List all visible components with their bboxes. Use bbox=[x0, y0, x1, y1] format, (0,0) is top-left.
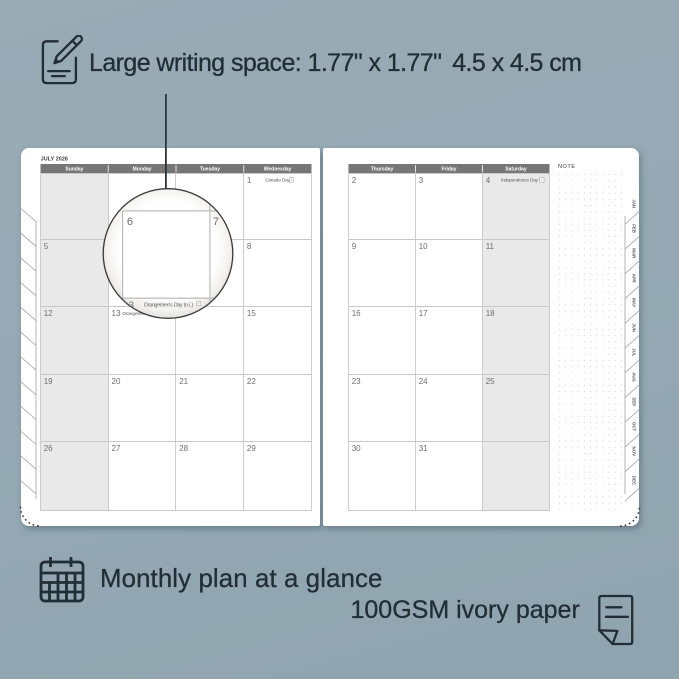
svg-text:JULY 2026: JULY 2026 bbox=[41, 156, 68, 162]
svg-text:16: 16 bbox=[352, 309, 361, 318]
svg-text:28: 28 bbox=[179, 444, 188, 453]
svg-text:SEP: SEP bbox=[632, 397, 637, 406]
svg-text:Canada Day: Canada Day bbox=[265, 178, 290, 183]
svg-text:FEB: FEB bbox=[632, 224, 637, 233]
svg-text:10: 10 bbox=[419, 242, 428, 251]
svg-text:29: 29 bbox=[247, 444, 256, 453]
svg-text:21: 21 bbox=[179, 377, 188, 386]
svg-text:18: 18 bbox=[486, 309, 495, 318]
svg-text:27: 27 bbox=[112, 444, 121, 453]
svg-text:13: 13 bbox=[112, 309, 121, 318]
svg-text:25: 25 bbox=[486, 377, 495, 386]
svg-text:Friday: Friday bbox=[441, 167, 456, 173]
svg-text:Saturday: Saturday bbox=[505, 167, 527, 173]
svg-text:Tuesday: Tuesday bbox=[200, 167, 220, 173]
svg-text:22: 22 bbox=[247, 377, 256, 386]
svg-text:6: 6 bbox=[127, 216, 133, 228]
svg-text:24: 24 bbox=[419, 377, 428, 386]
svg-text:Orangemen's Day (n.i.): Orangemen's Day (n.i.) bbox=[144, 303, 194, 309]
svg-text:5: 5 bbox=[44, 242, 49, 251]
svg-text:31: 31 bbox=[419, 444, 428, 453]
svg-text:30: 30 bbox=[352, 444, 361, 453]
svg-text:Sunday: Sunday bbox=[65, 167, 83, 173]
svg-text:7: 7 bbox=[213, 216, 219, 228]
svg-text:17: 17 bbox=[419, 309, 428, 318]
svg-text:9: 9 bbox=[352, 242, 357, 251]
svg-text:Wednesday: Wednesday bbox=[264, 167, 292, 173]
svg-text:1: 1 bbox=[247, 176, 252, 185]
svg-text:8: 8 bbox=[247, 242, 252, 251]
svg-text:JUL: JUL bbox=[632, 348, 637, 357]
svg-text:JUN: JUN bbox=[632, 323, 637, 332]
svg-text:DEC: DEC bbox=[632, 476, 637, 486]
svg-text:AUG: AUG bbox=[632, 372, 637, 382]
svg-text:+: + bbox=[291, 178, 293, 182]
svg-text:19: 19 bbox=[44, 377, 53, 386]
svg-text:3: 3 bbox=[419, 176, 424, 185]
svg-text:+: + bbox=[541, 178, 543, 182]
svg-text:OCT: OCT bbox=[632, 422, 637, 432]
svg-text:NOTE: NOTE bbox=[558, 164, 576, 170]
svg-text:Monday: Monday bbox=[133, 167, 152, 173]
svg-text:20: 20 bbox=[112, 377, 121, 386]
svg-text:26: 26 bbox=[44, 444, 53, 453]
svg-text:MAR: MAR bbox=[632, 248, 637, 259]
svg-text:2: 2 bbox=[352, 176, 357, 185]
svg-text:11: 11 bbox=[486, 242, 495, 251]
svg-text:JAN: JAN bbox=[632, 199, 637, 208]
svg-text:12: 12 bbox=[44, 309, 53, 318]
svg-text:NOV: NOV bbox=[632, 447, 637, 457]
svg-text:MAY: MAY bbox=[632, 298, 637, 307]
svg-text:23: 23 bbox=[352, 377, 361, 386]
svg-text:Thursday: Thursday bbox=[371, 167, 394, 173]
svg-text:+: + bbox=[198, 302, 200, 306]
svg-text:4: 4 bbox=[486, 176, 491, 185]
svg-text:15: 15 bbox=[247, 309, 256, 318]
svg-text:APR: APR bbox=[632, 273, 637, 283]
svg-text:Independence Day: Independence Day bbox=[501, 178, 539, 183]
